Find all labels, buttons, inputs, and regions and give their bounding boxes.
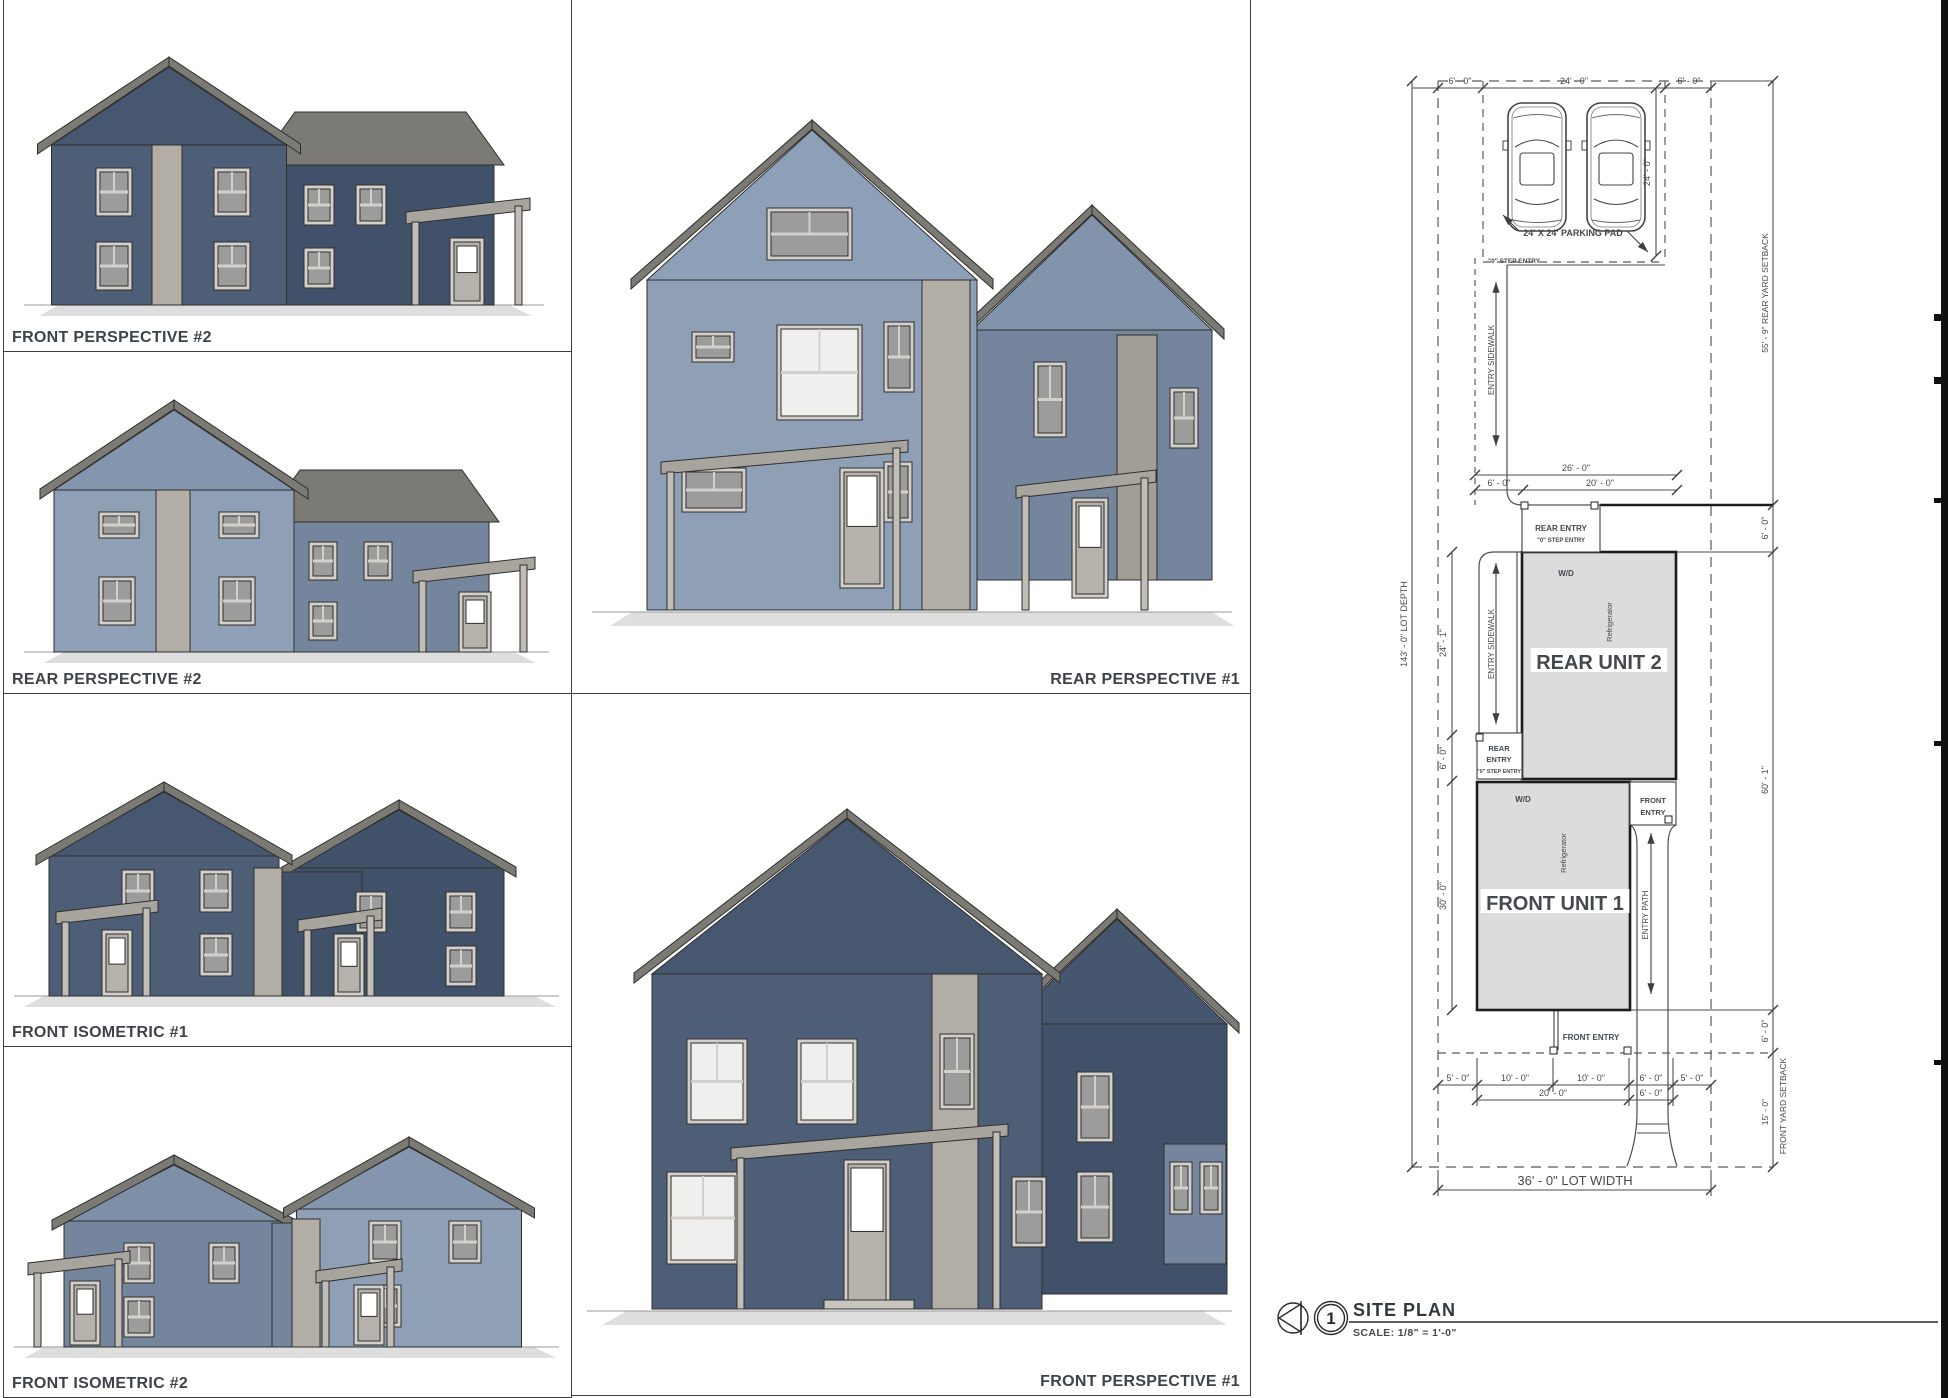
ground-shadow [24, 1347, 556, 1358]
dim-20-rear: 20' - 0" [1586, 478, 1614, 488]
door-glass [851, 1168, 883, 1231]
panel-front-isometric-2: FRONT ISOMETRIC #2 [3, 1047, 572, 1398]
dim-10-b: 10' - 0" [1577, 1073, 1605, 1083]
car-part [1520, 153, 1554, 185]
door-glass [109, 938, 125, 964]
panel-front-perspective-2: FRONT PERSPECTIVE #2 [3, 0, 572, 352]
porch-post [304, 930, 311, 996]
door-marker [1624, 1047, 1631, 1054]
gable-pediment [52, 67, 287, 145]
sheet-edge-border [1941, 0, 1948, 1398]
rear-unit-2-label: REAR UNIT 2 [1536, 652, 1662, 674]
upper-sidewalk-edge [1507, 265, 1522, 505]
car-part [1508, 103, 1566, 231]
dim-parking-depth: 24' - 0" [1642, 158, 1652, 186]
lot-width-label: 36' - 0" LOT WIDTH [1517, 1173, 1632, 1188]
accent-band [922, 280, 970, 610]
house-rendering-front-perspective-1 [572, 694, 1248, 1366]
lot-depth-label: 143' - 0" LOT DEPTH [1399, 581, 1409, 667]
gable-wall [49, 856, 279, 996]
car-part [1513, 220, 1561, 223]
dim-20-front: 20' - 0" [1539, 1088, 1567, 1098]
door-glass [457, 246, 477, 273]
rear-entry-2-sub: "0" STEP ENTRY [1537, 538, 1585, 544]
ground-shadow [44, 652, 536, 663]
ground-shadow [602, 1311, 1227, 1325]
porch-step [824, 1300, 914, 1309]
site-plan-panel: 6' - 0"24' - 0"6' - 0"24' - 0"24' X 24' … [1251, 0, 1948, 1398]
door-marker [1476, 734, 1483, 741]
dim-5-west: 5' - 0" [1447, 1073, 1470, 1083]
parking-pad-label: 24' X 24' PARKING PAD [1523, 228, 1623, 238]
north-arrow-icon [1278, 1303, 1308, 1333]
view-label-rear-perspective-2: REAR PERSPECTIVE #2 [12, 671, 202, 689]
site-plan-title-block: 1 SITE PLAN SCALE: 1/8" = 1'-0" [1278, 1300, 1938, 1339]
rear-entry-2-title: REAR ENTRY [1535, 524, 1587, 533]
washer-dryer-front: W/D [1515, 795, 1531, 804]
house-rendering-rear-perspective-1 [572, 0, 1248, 664]
door-glass [466, 600, 484, 623]
porch-post [367, 916, 374, 996]
ground-shadow [24, 996, 556, 1007]
rear-yard-setback: 55' - 9" REAR YARD SETBACK [1760, 233, 1770, 353]
door-marker [1591, 502, 1598, 509]
washer-dryer-rear: W/D [1558, 569, 1574, 578]
panel-rear-perspective-2: REAR PERSPECTIVE #2 [3, 352, 572, 694]
car-part [1592, 115, 1640, 119]
dim-6-right-2: 6' - 0" [1760, 1020, 1770, 1043]
gable-pediment [294, 810, 504, 868]
dim-top-west: 6' - 0" [1449, 76, 1472, 86]
view-label-rear-perspective-1: REAR PERSPECTIVE #1 [1050, 671, 1240, 689]
refrigerator-front: Refrigerator [1559, 833, 1568, 873]
entry-path-label: ENTRY PATH [1641, 890, 1650, 939]
entry-sidewalk-arrow-upper-head [1492, 282, 1499, 293]
entry-path-arrow-head [1647, 833, 1654, 844]
detail-number: 1 [1326, 1309, 1335, 1328]
gable-pediment [972, 215, 1212, 330]
door-glass [77, 1289, 93, 1314]
car-part [1515, 140, 1559, 147]
house-rendering-front-isometric-1 [4, 694, 570, 1019]
dim-10-a: 10' - 0" [1501, 1073, 1529, 1083]
dim-top-east: 6' - 0" [1678, 76, 1701, 86]
front-entry-2-a: FRONT [1640, 796, 1666, 805]
dim-6-left: 6' - 0" [1438, 747, 1448, 770]
porch-post [322, 1281, 329, 1347]
porch-post [515, 206, 522, 305]
rear-entry-1-c: "0" STEP ENTRY [1477, 769, 1521, 775]
porch-post [387, 1267, 394, 1347]
porch-post [62, 922, 69, 996]
car-icon [1503, 103, 1571, 231]
site-plan-drawing: 6' - 0"24' - 0"6' - 0"24' - 0"24' X 24' … [1251, 0, 1948, 1398]
porch-post [1022, 496, 1029, 610]
dim-60-1: 60' - 1" [1760, 766, 1770, 794]
site-plan-scale: SCALE: 1/8" = 1'-0" [1353, 1327, 1457, 1339]
site-plan-title: SITE PLAN [1353, 1300, 1456, 1320]
dim-30: 30' - 0" [1438, 882, 1448, 910]
porch-post [737, 1158, 744, 1309]
porch-post [115, 1259, 122, 1347]
porch-post [667, 472, 674, 610]
dim-24-1: 24' - 1" [1438, 629, 1448, 657]
front-entry-1-label: FRONT ENTRY [1563, 1033, 1620, 1042]
porch-post [412, 222, 419, 305]
door-glass [341, 942, 357, 966]
car-part [1592, 220, 1640, 223]
gable-pediment [49, 792, 279, 856]
panel-front-isometric-1: FRONT ISOMETRIC #1 [3, 694, 572, 1047]
door-glass [361, 1293, 377, 1316]
dim-6-path: 6' - 0" [1640, 1073, 1663, 1083]
accent-band [156, 490, 190, 652]
entry-sidewalk-upper: ENTRY SIDEWALK [1487, 324, 1496, 395]
front-yard-setback: FRONT YARD SETBACK [1778, 1057, 1788, 1154]
porch-post [993, 1132, 1000, 1309]
view-label-front-perspective-2: FRONT PERSPECTIVE #2 [12, 329, 212, 347]
gable-pediment [54, 410, 294, 490]
entry-path-arrow-head [1647, 983, 1654, 994]
car-part [1599, 153, 1633, 185]
porch-post [143, 908, 150, 996]
gable-pediment [64, 1165, 284, 1221]
dim-15: 15' - 0" [1760, 1099, 1770, 1125]
car-icon [1582, 103, 1650, 231]
view-label-front-isometric-1: FRONT ISOMETRIC #1 [12, 1024, 188, 1042]
door-marker [1521, 502, 1528, 509]
ground-shadow [39, 305, 532, 316]
entry-sidewalk-arrow-lower-head [1492, 713, 1499, 724]
dim-6-path-2: 6' - 0" [1640, 1088, 1663, 1098]
door-glass [847, 476, 877, 526]
wing-roof [257, 112, 504, 165]
accent-band [1117, 335, 1157, 580]
door-marker [1665, 816, 1672, 823]
dim-6-right-1: 6' - 0" [1760, 517, 1770, 540]
gable-pediment [297, 1147, 522, 1209]
rear-entry-1-b: ENTRY [1486, 755, 1511, 764]
porch-post [1141, 478, 1148, 610]
door-marker [1550, 1047, 1557, 1054]
car-part [1587, 103, 1645, 231]
car-part [1513, 115, 1561, 119]
door-glass [1079, 506, 1101, 547]
gable-pediment [652, 819, 1042, 974]
car-part [1594, 140, 1638, 147]
entry-path-east-edge [1668, 825, 1677, 1166]
front-entry-2-b: ENTRY [1640, 808, 1665, 817]
entry-sidewalk-arrow-lower-head [1492, 563, 1499, 574]
wing-roof [262, 470, 499, 522]
porch-post [520, 565, 527, 652]
front-unit-1-label: FRONT UNIT 1 [1486, 893, 1624, 915]
dim-5-east: 5' - 0" [1681, 1073, 1704, 1083]
entry-sidewalk-lower: ENTRY SIDEWALK [1487, 608, 1496, 679]
dim-6-walk: 6' - 0" [1488, 478, 1511, 488]
house-rendering-rear-perspective-2 [4, 352, 570, 666]
view-label-front-perspective-1: FRONT PERSPECTIVE #1 [1040, 1373, 1240, 1391]
panel-rear-perspective-1: REAR PERSPECTIVE #1 [572, 0, 1251, 694]
refrigerator-rear: Refrigerator [1605, 602, 1614, 642]
view-label-front-isometric-2: FRONT ISOMETRIC #2 [12, 1375, 188, 1393]
dim-26: 26' - 0" [1562, 463, 1590, 473]
panel-front-perspective-1: FRONT PERSPECTIVE #1 [572, 694, 1251, 1396]
dim-top-parking: 24' - 0" [1560, 76, 1588, 86]
house-rendering-front-isometric-2 [4, 1047, 570, 1370]
entry-sidewalk-arrow-upper-head [1492, 435, 1499, 446]
rear-entry-1-a: REAR [1488, 744, 1510, 753]
accent-band [254, 868, 282, 996]
car-part [1515, 199, 1559, 205]
accent-band [152, 145, 182, 305]
house-rendering-front-perspective-2 [4, 0, 570, 324]
porch-post [34, 1273, 41, 1347]
porch-post [419, 581, 426, 652]
note-step-entry-pad: "0" STEP ENTRY [1488, 258, 1541, 265]
car-part [1594, 199, 1638, 205]
porch-post [893, 448, 900, 610]
ground-shadow [610, 612, 1234, 626]
lower-sidewalk-west-edge [1479, 552, 1522, 733]
